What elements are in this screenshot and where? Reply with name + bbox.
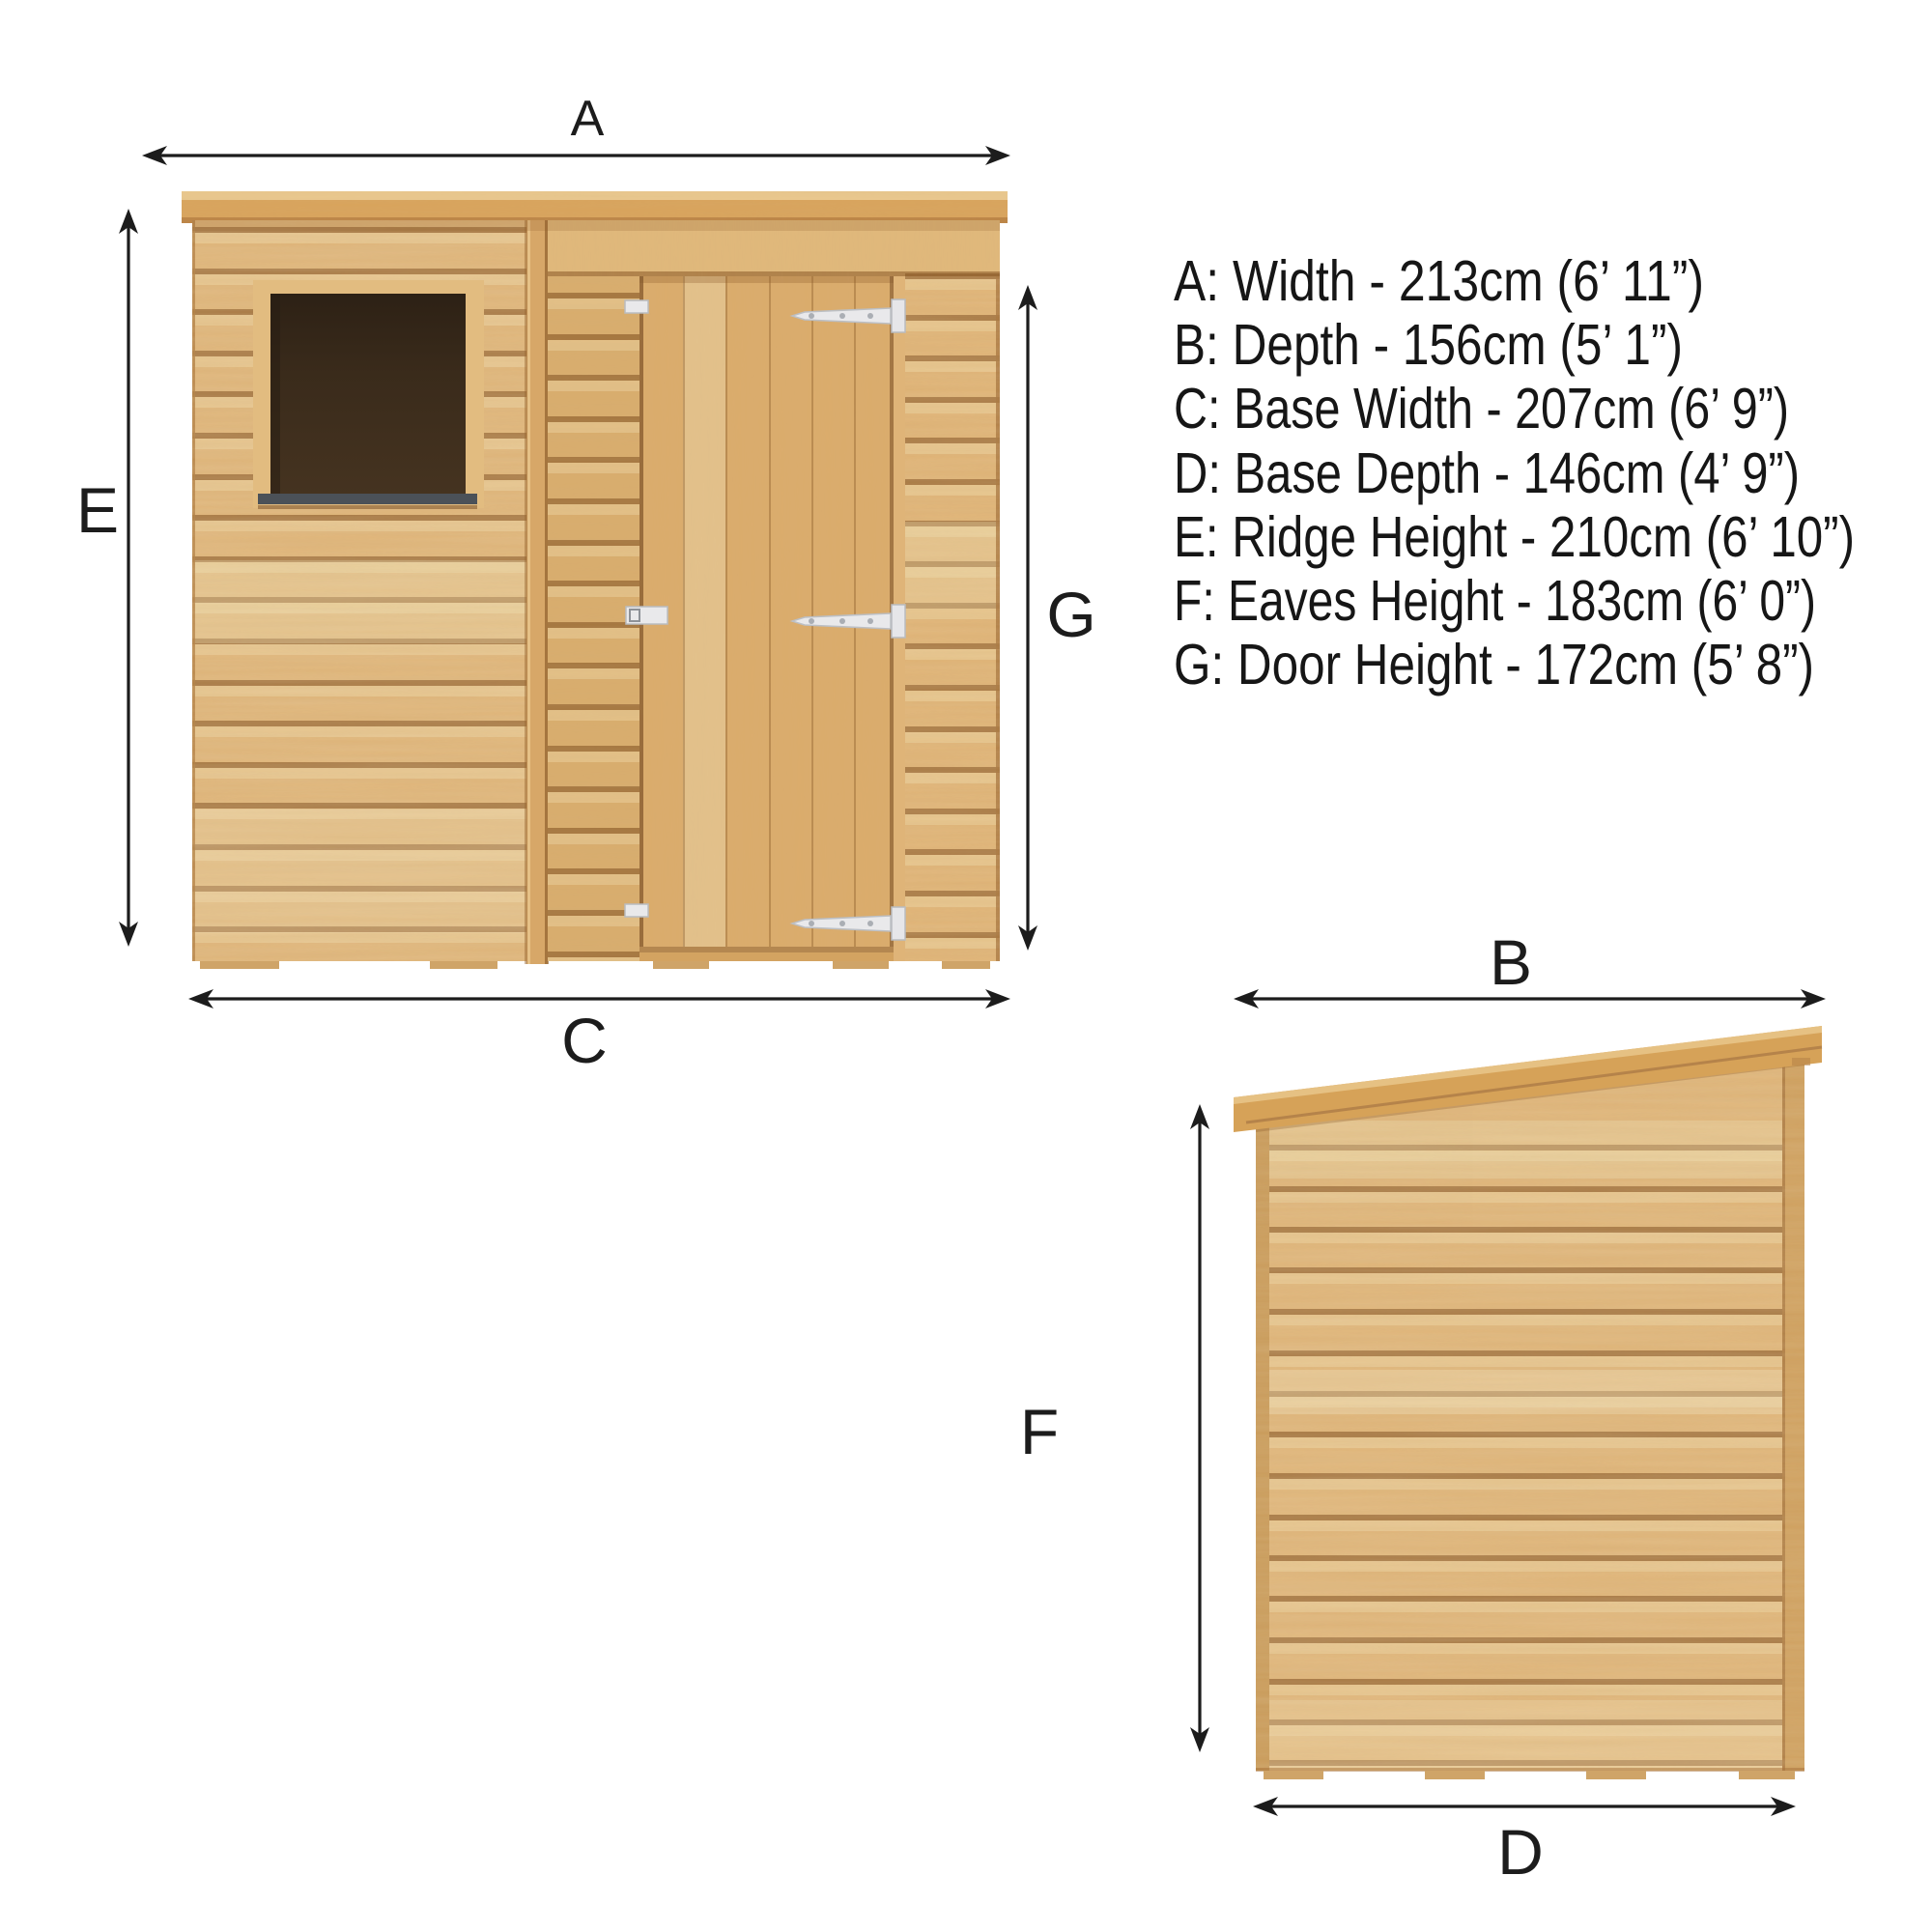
svg-text:B: B [1490, 926, 1532, 998]
svg-text:D: Base Depth - 146cm (4’ 9”): D: Base Depth - 146cm (4’ 9”) [1174, 441, 1800, 505]
svg-text:F: F [1020, 1396, 1059, 1467]
svg-text:F: Eaves Height - 183cm (6’ 0”: F: Eaves Height - 183cm (6’ 0”) [1174, 569, 1816, 633]
svg-text:G: Door Height - 172cm (5’ 8”): G: Door Height - 172cm (5’ 8”) [1174, 633, 1814, 696]
svg-text:A: A [571, 91, 605, 147]
svg-text:B: Depth - 156cm (5’ 1”): B: Depth - 156cm (5’ 1”) [1174, 313, 1683, 377]
svg-text:D: D [1497, 1816, 1544, 1888]
svg-text:C: C [561, 1005, 608, 1076]
svg-text:C: Base Width - 207cm (6’ 9”): C: Base Width - 207cm (6’ 9”) [1174, 377, 1789, 440]
svg-text:G: G [1046, 579, 1095, 650]
svg-text:A: Width - 213cm (6’ 11”): A: Width - 213cm (6’ 11”) [1174, 249, 1704, 313]
svg-text:E: E [76, 474, 119, 546]
svg-text:E: Ridge Height - 210cm (6’ 10: E: Ridge Height - 210cm (6’ 10”) [1174, 505, 1855, 569]
